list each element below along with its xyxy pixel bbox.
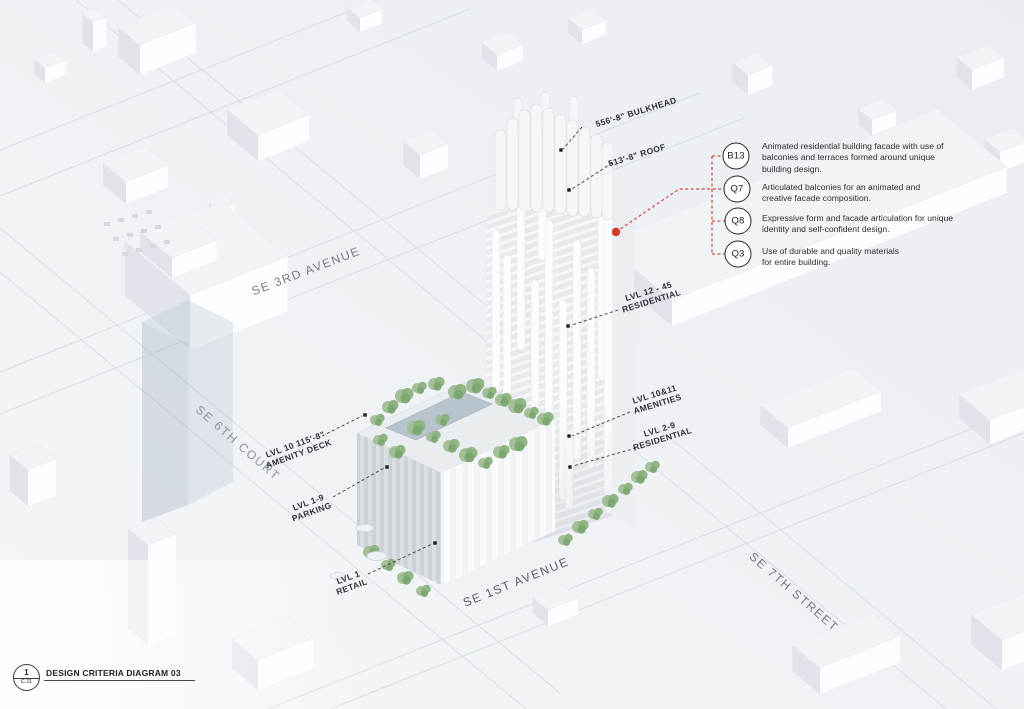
callout-text-b13: Animated residential building facade wit… [762, 141, 962, 175]
callout-code-q8: Q8 [725, 208, 752, 235]
callout-code-label: B13 [727, 151, 745, 162]
callout-text-q8: Expressive form and facade articulation … [762, 213, 967, 236]
drawing-title: DESIGN CRITERIA DIAGRAM 03 [44, 668, 195, 681]
detail-number: 1 [14, 668, 39, 679]
callout-code-q7: Q7 [724, 176, 751, 203]
detail-marker: 1 C.11 [13, 664, 40, 691]
design-criteria-diagram-page: SE 3RD AVENUE SE 6TH COURT SE 1ST AVENUE… [0, 0, 1024, 709]
callout-code-label: Q7 [730, 184, 743, 195]
callout-text-q3: Use of durable and quality materials for… [762, 246, 902, 269]
callout-text-q7: Articulated balconies for an animated an… [762, 182, 942, 205]
site-axonometric-rendering [0, 0, 1024, 709]
callout-code-label: Q3 [731, 249, 744, 260]
callout-code-q3: Q3 [725, 241, 752, 268]
callout-code-b13: B13 [723, 143, 750, 170]
translucent-building [142, 300, 233, 522]
sheet-reference: C.11 [21, 679, 32, 687]
callout-code-label: Q8 [731, 216, 744, 227]
title-block: 1 C.11 DESIGN CRITERIA DIAGRAM 03 [13, 664, 195, 691]
